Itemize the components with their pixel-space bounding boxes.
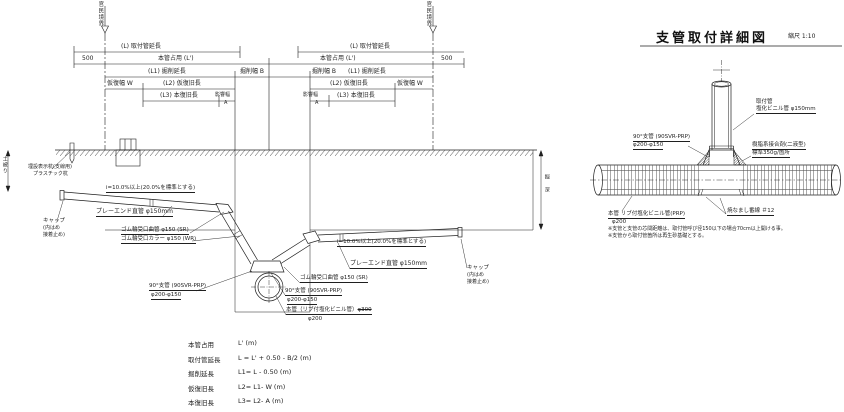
- cap-label-right-2: (内はめ: [467, 273, 484, 279]
- bend-label-center: ゴム輪受口曲管 φ150 (SR): [300, 275, 368, 283]
- drawing-canvas: 官民境界 官民境界 (L) 取付管延長 (L) 取付管延長 500 500 本管…: [0, 0, 844, 412]
- detail-scale: 縮尺 1:10: [788, 34, 815, 41]
- legend-formula: L = L' + 0.50 - B/2 (m): [238, 354, 311, 364]
- dim-honkan-right: 本管占用 (L'): [320, 56, 356, 63]
- detail-attach-pipe: [710, 60, 734, 157]
- cap-label-left-2: (内はめ: [43, 226, 60, 232]
- dim-a-label-right: 影響幅: [303, 93, 318, 99]
- dim-a-left: A: [224, 101, 227, 107]
- detail-main-pipe: [590, 165, 843, 195]
- attach-pipe-label-2: 塩化ビニル管 φ150mm: [756, 106, 816, 114]
- branch-label-left-1: 90°支管 (90SVR-PRP): [149, 283, 206, 291]
- cap-label-right-1: キャップ: [467, 265, 489, 271]
- main-pipe-label: 本管（リブ付塩化ビニル管）φ300: [286, 307, 372, 315]
- dim-a-label-left: 影響幅: [215, 93, 230, 99]
- cap-label-right-3: 接着止め): [467, 280, 489, 286]
- main-pipe-old-dia: φ300: [358, 307, 372, 313]
- line-art: [0, 0, 844, 412]
- dim-honkan-left: 本管占用 (L'): [158, 56, 194, 63]
- dig-depth-label: 掘 深: [543, 174, 549, 193]
- branch-label-left-2: φ200-φ150: [151, 292, 181, 300]
- dim-l2-left: (L2) 仮復旧長: [163, 81, 201, 88]
- dim-l2-right: (L2) 仮復旧長: [330, 81, 368, 88]
- legend-formula: L3= L2- A (m): [238, 397, 283, 407]
- branch-label-right-1: 90°支管 (90SVR-PRP): [285, 288, 342, 296]
- legend-row: 仮復旧長L2= L1- W (m): [188, 383, 311, 393]
- dim-b-left: 掘削幅 B: [240, 69, 264, 76]
- dim-a-right: A: [315, 101, 318, 107]
- stake-label-2: プラスチック杭: [33, 172, 68, 178]
- dim-l-right: (L) 取付管延長: [350, 44, 390, 51]
- dim-l3-left: (L3) 本復旧長: [160, 93, 198, 100]
- legend-name: 本管占用: [188, 339, 238, 349]
- dim-w-left: 仮復幅 W: [107, 81, 133, 88]
- depth-dimensions: [6, 151, 543, 230]
- main-pipe-label-text: 本管（リブ付塩化ビニル管）: [286, 307, 358, 313]
- legend-name: 本復旧長: [188, 397, 238, 407]
- detail-branch-label-2: φ200-φ150: [633, 142, 663, 150]
- legend-row: 掘削延長L1= L - 0.50 (m): [188, 368, 311, 378]
- legend-row: 本復旧長L3= L2- A (m): [188, 397, 311, 407]
- legend-formula: L' (m): [238, 339, 257, 349]
- leader-lines-main: [52, 152, 467, 315]
- dimension-chains: [74, 46, 464, 150]
- detail-note-2: ※支管から取付管箇所は再生砂基礎とする。: [608, 234, 707, 240]
- dim-500-left: 500: [82, 56, 93, 63]
- adhesive-label-2: 標準350g/箇所: [752, 150, 790, 158]
- dim-500-right: 500: [441, 56, 452, 63]
- dim-b-right: 掘削幅 B: [312, 69, 336, 76]
- legend-formula: L2= L1- W (m): [238, 383, 285, 393]
- attach-pipe-label-1: 取付管: [756, 99, 773, 105]
- detail-main-label-1: 本管 リブ付塩化ビニル管(PRP): [608, 211, 685, 219]
- slope-note-left: i=10.0%以上(20.0%を標準とする): [106, 185, 195, 193]
- legend-table: 本管占用L' (m) 取付管延長L = L' + 0.50 - B/2 (m) …: [188, 339, 311, 412]
- wire-label: 焼なまし番線 ＃12: [727, 208, 774, 216]
- detail-branch-label-1: 90°支管 (90SVR-PRP): [633, 134, 690, 142]
- boundary-label-left: 官民境界: [97, 1, 103, 27]
- main-sewer-section: [250, 261, 287, 304]
- dim-l1-left: (L1) 掘削延長: [148, 69, 186, 76]
- detail-main-label-2: φ200: [612, 219, 626, 225]
- legend-formula: L1= L - 0.50 (m): [238, 368, 291, 378]
- cap-label-left-3: 接着止め): [43, 233, 65, 239]
- cover-depth-label: 土被り: [1, 156, 7, 174]
- dim-l1-right: (L1) 掘削延長: [348, 69, 386, 76]
- stake-label-1: 埋設表示杭(支線用): [28, 165, 72, 171]
- adhesive-label-1: 樹脂系接合剤(二液型): [752, 142, 806, 150]
- dim-l3-right: (L3) 本復旧長: [337, 93, 375, 100]
- plain-pipe-label-right: プレーエンド直管 φ150mm: [350, 261, 427, 269]
- legend-name: 掘削延長: [188, 368, 238, 378]
- detail-title: 支管取付詳細図: [656, 27, 768, 46]
- slope-note-right: i=10.0%以上(20.0%を標準とする): [337, 239, 426, 247]
- legend-name: 取付管延長: [188, 354, 238, 364]
- boundary-label-right: 官民境界: [425, 1, 431, 27]
- branch-label-right-2: φ200-φ150: [287, 297, 317, 305]
- cap-label-left-1: キャップ: [43, 218, 65, 224]
- main-pipe-new-dia: φ200: [308, 316, 322, 322]
- bend-label-left: ゴム輪受口曲管 φ150 (SR): [121, 227, 189, 235]
- legend-row: 本管占用L' (m): [188, 339, 311, 349]
- dim-w-right: 仮復幅 W: [397, 81, 423, 88]
- legend-name: 仮復旧長: [188, 383, 238, 393]
- plain-pipe-label-left: プレーエンド直管 φ150mm: [96, 209, 173, 217]
- detail-saddle: [697, 150, 746, 196]
- dim-l-left: (L) 取付管延長: [121, 44, 161, 51]
- legend-row: 取付管延長L = L' + 0.50 - B/2 (m): [188, 354, 311, 364]
- detail-note-1: ※支管と支管の芯間距離は、取付管呼び径150以下の場合70cm以上開ける事。: [608, 227, 786, 233]
- collar-label-left: ゴム輪受口カラー φ150 (WR): [121, 236, 196, 244]
